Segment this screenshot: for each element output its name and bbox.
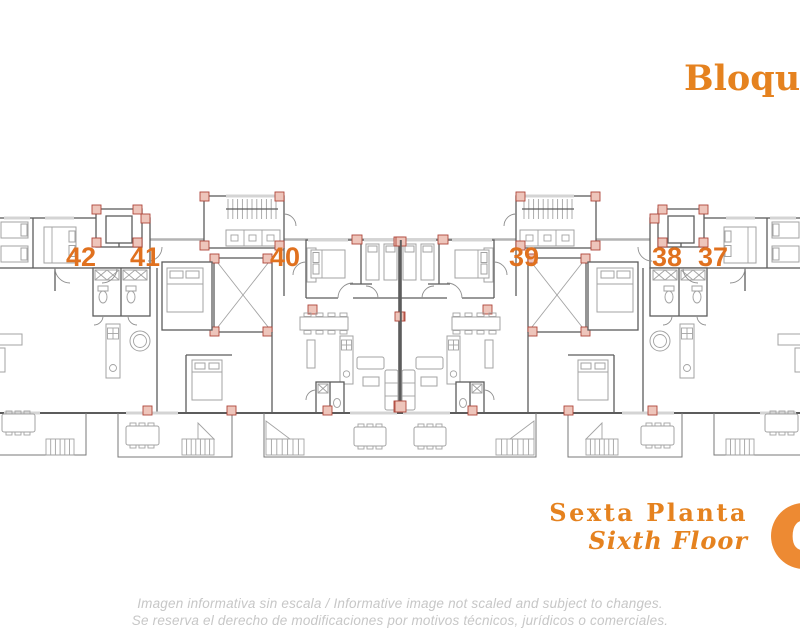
unit-number-label: 40 — [270, 244, 300, 271]
unit-number-label: 42 — [66, 244, 96, 271]
floor-plan-page: Bloque — [0, 0, 800, 640]
floor-name: Sexta Planta Sixth Floor — [549, 499, 748, 555]
floor-name-es: Sexta Planta — [549, 499, 748, 527]
disclaimer: Imagen informativa sin escala / Informat… — [0, 595, 800, 629]
unit-number-label: 39 — [509, 244, 539, 271]
disclaimer-line-2: Se reserva el derecho de modificaciones … — [0, 612, 800, 629]
floor-number: 6 — [790, 513, 800, 560]
floor-name-en: Sixth Floor — [549, 527, 748, 555]
unit-number-label: 37 — [698, 244, 728, 271]
unit-number-label: 41 — [130, 244, 160, 271]
disclaimer-line-1: Imagen informativa sin escala / Informat… — [0, 595, 800, 612]
unit-number-label: 38 — [652, 244, 682, 271]
